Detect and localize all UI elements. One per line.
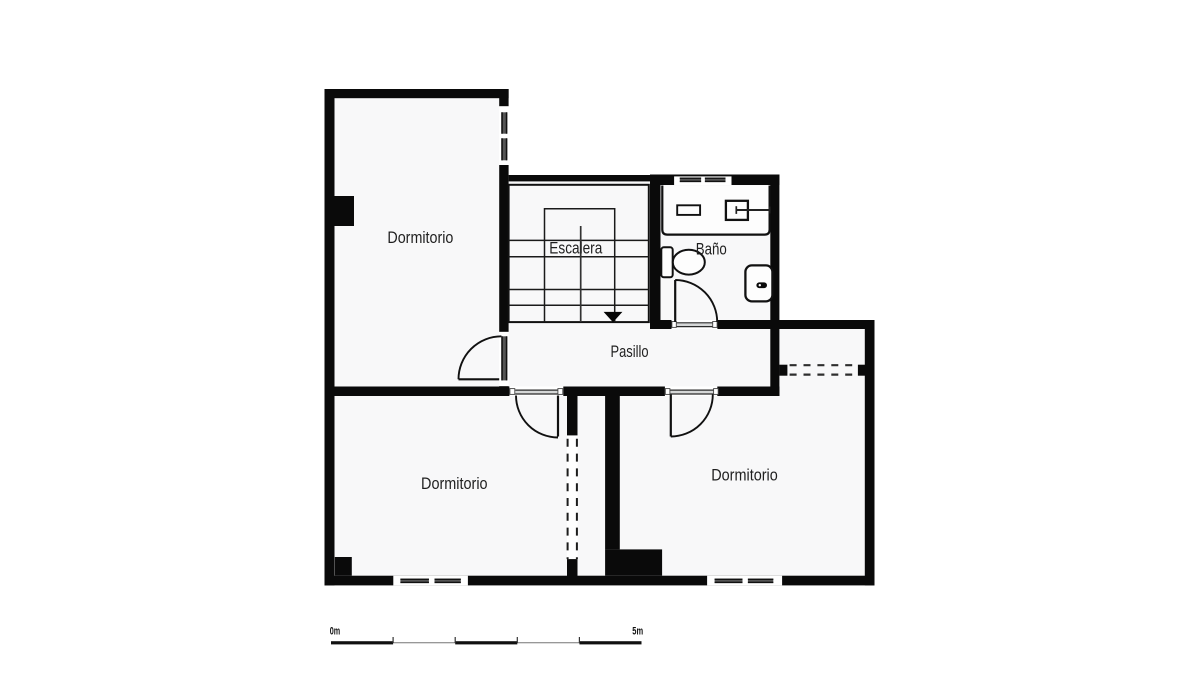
svg-text:5m: 5m [632, 626, 643, 638]
svg-text:Pasillo: Pasillo [611, 343, 649, 361]
svg-text:Dormitorio: Dormitorio [387, 229, 453, 247]
svg-text:Dormitorio: Dormitorio [711, 466, 778, 484]
svg-text:Dormitorio: Dormitorio [421, 475, 488, 493]
svg-text:Escalera: Escalera [549, 239, 603, 257]
svg-text:0m: 0m [330, 626, 340, 638]
svg-text:Baño: Baño [696, 240, 727, 258]
